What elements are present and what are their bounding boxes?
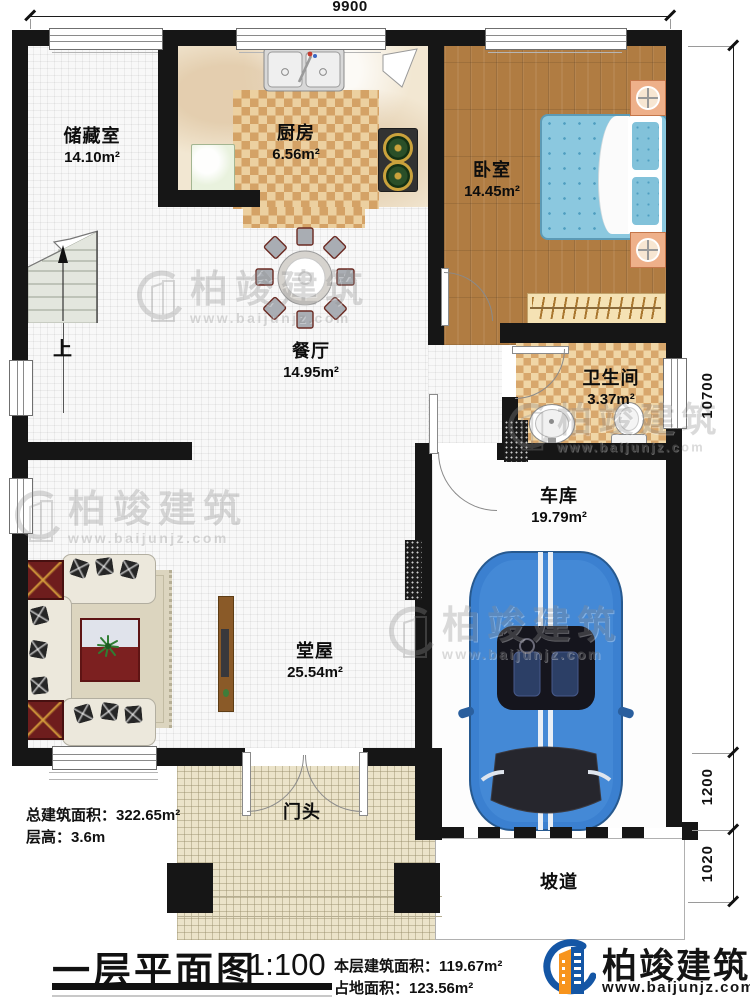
dimension-line-right — [733, 46, 734, 902]
up-text: 上 — [53, 334, 73, 361]
witness-line — [30, 19, 31, 29]
brand-logo-icon — [538, 938, 596, 1000]
dining-table-set — [250, 222, 360, 334]
note-footprint-area: 占地面积：123.56m² — [334, 977, 473, 998]
room-name: 卫生间 — [583, 364, 640, 390]
room-label-storage: 储藏室 14.10m² — [64, 122, 121, 166]
cushion — [124, 705, 142, 723]
small-plant — [223, 689, 229, 697]
room-name: 坡道 — [540, 868, 578, 894]
window-sill — [49, 779, 158, 780]
room-area: 14.95m² — [283, 364, 339, 381]
wall-column — [415, 748, 442, 840]
tv — [221, 629, 229, 677]
note-total-area: 总建筑面积：322.65m² — [26, 804, 180, 825]
toilet — [610, 402, 646, 448]
title-underline-thick — [52, 983, 332, 990]
wardrobe-rail — [530, 307, 661, 309]
floor-plan-sheet: 柏竣建筑 www.baijunjz.com 柏竣建筑 www.baijunjz.… — [0, 0, 750, 1006]
wall — [161, 30, 236, 46]
table-lamp — [636, 238, 660, 262]
garage-door-leaf — [429, 394, 438, 454]
room-label-garage: 车库 19.79m² — [531, 482, 587, 526]
cushion — [30, 676, 49, 695]
porch-floor — [177, 766, 442, 940]
room-area: 19.79m² — [531, 509, 587, 526]
room-label-bedroom: 卧室 14.45m² — [464, 156, 520, 200]
stove — [378, 128, 418, 192]
witness-line — [688, 902, 734, 903]
window — [236, 28, 386, 50]
table-lamp — [636, 86, 660, 110]
wall — [152, 748, 245, 766]
room-label-bathroom: 卫生间 3.37m² — [583, 364, 640, 408]
cushion — [69, 558, 90, 579]
wall — [12, 748, 55, 766]
window-sill — [49, 772, 158, 773]
window — [49, 28, 163, 50]
nightstand — [630, 232, 666, 268]
room-name: 门头 — [283, 798, 321, 824]
wall — [158, 190, 260, 207]
witness-line — [670, 19, 671, 29]
wall — [12, 532, 28, 766]
dimension-width: 9900 — [332, 0, 367, 15]
porch-column — [394, 863, 440, 913]
stairs-up-label: 上 — [53, 334, 73, 361]
flue-column — [504, 420, 528, 462]
garage-door-dashed — [442, 827, 658, 838]
wall — [26, 442, 192, 460]
wall — [384, 30, 485, 46]
note-floor-area: 本层建筑面积：119.67m² — [334, 955, 502, 976]
porch-column — [167, 863, 213, 913]
sofa-bottom — [62, 698, 156, 746]
kitchen-sink — [263, 46, 345, 92]
room-area: 6.56m² — [272, 146, 320, 163]
dimension-height-garage-door: 1200 — [699, 768, 716, 805]
room-name: 储藏室 — [64, 122, 121, 148]
tv-cabinet — [218, 596, 234, 712]
cushion — [73, 703, 94, 724]
pillow — [631, 176, 660, 226]
flue-column — [405, 540, 422, 600]
room-label-porch: 门头 — [283, 798, 321, 824]
wardrobe — [527, 293, 666, 325]
window — [9, 360, 33, 416]
sink-drain — [549, 419, 554, 424]
cushion — [100, 702, 119, 721]
note-floor-height: 层高：3.6m — [26, 826, 105, 847]
dimension-line-top — [30, 16, 670, 17]
sofa-left — [24, 596, 72, 712]
sofa-top — [62, 554, 156, 604]
bed-sheet-fold — [598, 116, 629, 234]
room-name: 车库 — [531, 482, 587, 508]
wall — [12, 30, 28, 360]
room-area: 3.37m² — [583, 391, 640, 408]
window — [52, 746, 157, 770]
wall — [666, 427, 682, 827]
room-name: 厨房 — [272, 119, 320, 145]
refrigerator — [191, 144, 235, 192]
cushion — [29, 605, 50, 626]
window-sill — [52, 52, 158, 53]
wall — [158, 46, 178, 192]
room-label-hall: 堂屋 25.54m² — [287, 637, 343, 681]
wall — [500, 323, 682, 343]
room-name: 堂屋 — [287, 637, 343, 663]
range-hood — [382, 48, 418, 88]
room-label-ramp: 坡道 — [540, 868, 578, 894]
toilet-seat — [619, 407, 639, 431]
window — [663, 358, 687, 429]
room-name: 餐厅 — [283, 337, 339, 363]
nightstand — [630, 80, 666, 116]
title-underline-thin — [52, 995, 332, 997]
corridor-floor — [428, 343, 502, 443]
bed — [540, 114, 668, 240]
window — [9, 478, 33, 534]
dimension-height-main: 10700 — [699, 372, 716, 419]
pillow — [631, 121, 660, 171]
room-label-kitchen: 厨房 6.56m² — [272, 119, 320, 163]
wall — [666, 30, 682, 358]
room-label-dining: 餐厅 14.95m² — [283, 337, 339, 381]
dimension-height-ramp: 1020 — [699, 845, 716, 882]
room-area: 25.54m² — [287, 664, 343, 681]
window-sill — [488, 52, 622, 53]
plant — [96, 634, 120, 658]
cushion — [119, 559, 140, 580]
cushion — [95, 557, 114, 576]
room-area: 14.10m² — [64, 149, 121, 166]
sheet-scale: 1:100 — [248, 947, 326, 983]
porch-step-line — [177, 916, 442, 917]
side-table — [24, 700, 64, 740]
car — [452, 548, 640, 834]
window — [485, 28, 627, 50]
stove-burner — [383, 161, 413, 191]
wall — [682, 822, 698, 840]
side-table — [24, 560, 64, 600]
staircase — [28, 223, 98, 323]
stove-burner — [383, 133, 413, 163]
witness-line — [688, 46, 734, 47]
brand-site: www.baijunjz.com — [602, 979, 750, 996]
room-name: 卧室 — [464, 156, 520, 182]
cushion — [29, 640, 49, 660]
room-area: 14.45m² — [464, 183, 520, 200]
bathroom-sink — [529, 404, 575, 444]
